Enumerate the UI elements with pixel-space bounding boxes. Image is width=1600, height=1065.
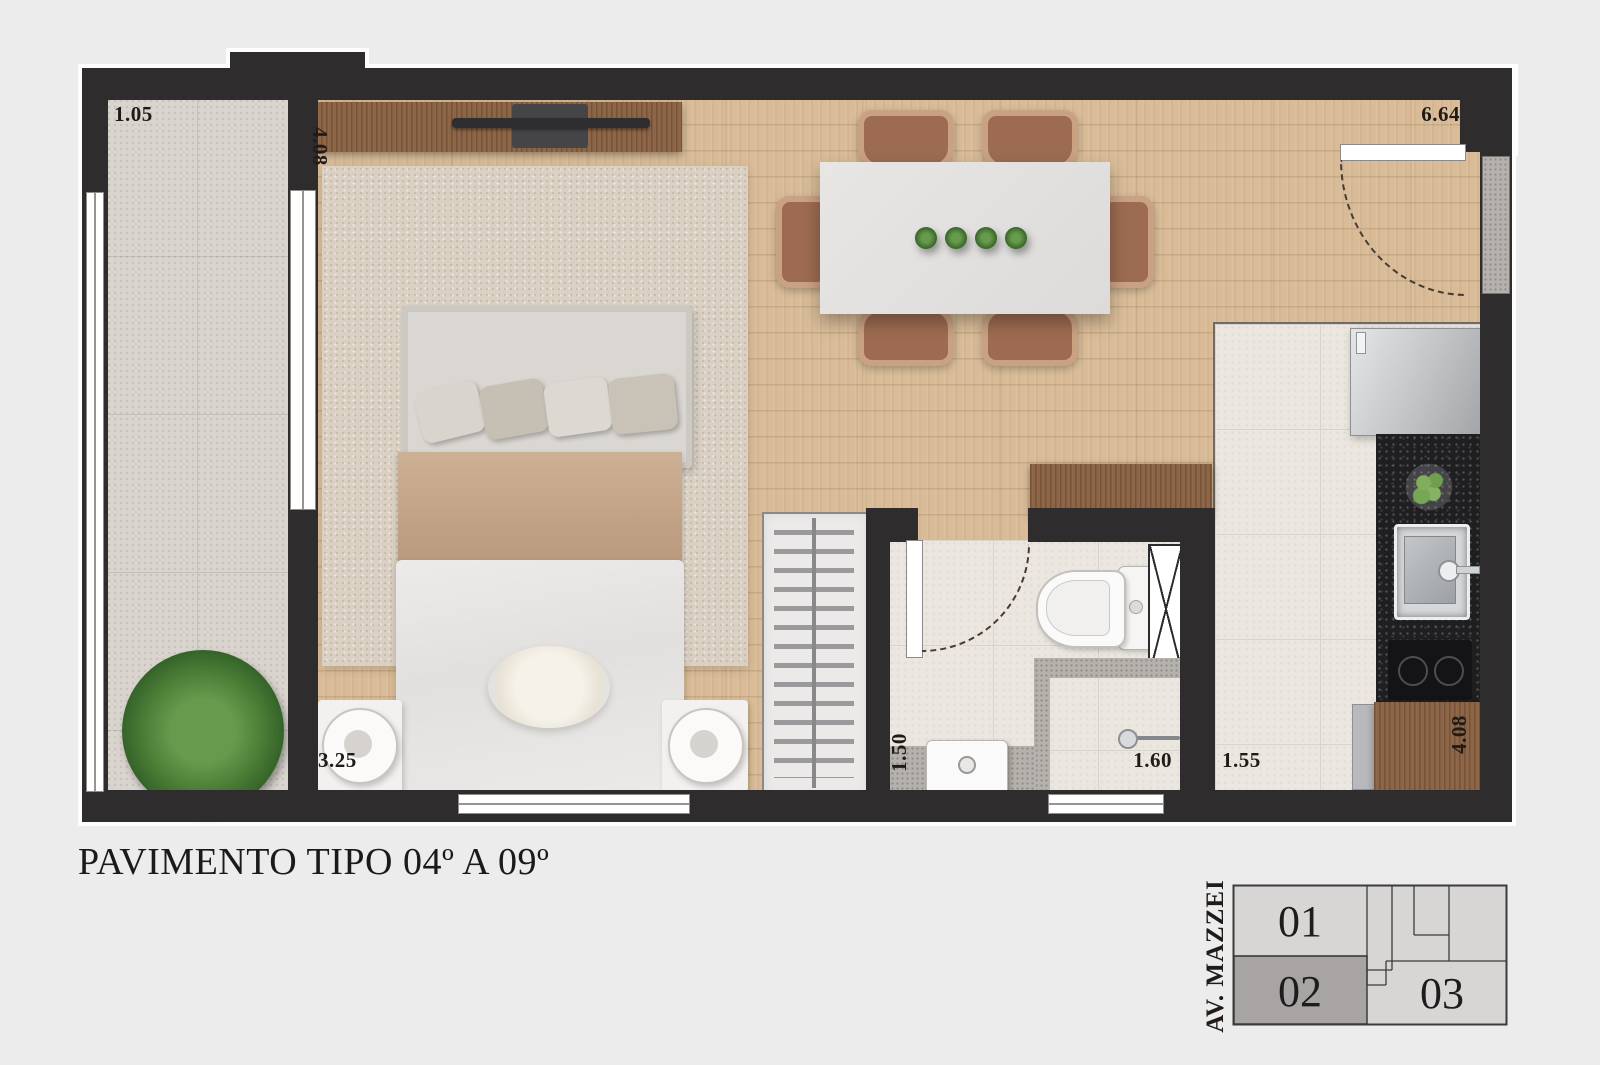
keyplan: 01 02 03 — [1232, 884, 1508, 1026]
fur-pillow — [488, 646, 610, 728]
fridge — [1350, 328, 1484, 436]
bathroom-window — [1048, 794, 1164, 814]
bed-pillow — [543, 376, 614, 438]
keyplan-unit-01-label: 01 — [1278, 897, 1322, 946]
dim-bedroom-width: 3.25 — [318, 748, 357, 773]
dim-kitchen-depth: 4.08 — [1447, 715, 1472, 754]
dim-living: 6.64 — [1402, 102, 1460, 127]
table-plant-icon — [1005, 227, 1027, 249]
dining-chair — [982, 110, 1078, 170]
balcony-window — [290, 190, 316, 510]
tv-screen — [452, 118, 650, 128]
wall-wardrobe-bath — [866, 508, 890, 822]
keyplan-unit-02-label: 02 — [1278, 967, 1322, 1016]
bedroom-window — [458, 794, 690, 814]
dim-bedroom-depth: 4.08 — [307, 127, 332, 166]
dim-balcony: 1.05 — [114, 102, 153, 127]
wall-entry-jamb — [1482, 156, 1510, 294]
entry-door-leaf — [1340, 144, 1466, 161]
bed-blanket — [398, 452, 682, 564]
page-title: PAVIMENTO TIPO 04º A 09º — [78, 840, 549, 884]
balcony-railing — [86, 192, 104, 792]
toilet-flush-icon — [1129, 600, 1143, 614]
shower-halfwall — [1034, 658, 1050, 792]
kitchen-faucet-arm — [1456, 566, 1480, 574]
keyplan-street-label: AV. MAZZEI — [1202, 876, 1230, 1036]
oven — [1352, 704, 1376, 790]
towel-bar-knob — [1118, 729, 1138, 749]
table-plant-icon — [915, 227, 937, 249]
side-table-center — [690, 730, 718, 758]
dim-bathroom-width: 1.50 — [887, 733, 912, 772]
dining-chair — [858, 306, 954, 366]
toilet-seat — [1046, 580, 1110, 636]
wardrobe-rod — [812, 518, 816, 788]
table-plant-icon — [945, 227, 967, 249]
fridge-handle — [1356, 332, 1366, 354]
bed-pillow — [607, 373, 678, 436]
bed-pillow — [478, 377, 550, 441]
wall-bath-kitchen — [1180, 508, 1215, 822]
bathroom-door-leaf — [906, 540, 923, 658]
floorplan-page: 1.05 4.08 6.64 3.25 1.50 1.60 1.55 4.08 … — [0, 0, 1600, 1065]
dim-kitchen-width: 1.55 — [1222, 748, 1261, 773]
bath-faucet-icon — [958, 756, 976, 774]
dining-chair — [982, 306, 1078, 366]
fruit-bowl-icon — [1402, 460, 1456, 514]
keyplan-unit-03-label: 03 — [1420, 969, 1464, 1018]
wall-bath-top-left — [866, 508, 918, 542]
shower-halfwall — [1034, 658, 1182, 678]
dining-chair — [858, 110, 954, 170]
shaft — [1148, 544, 1184, 674]
cooktop-burner-icon — [1398, 656, 1428, 686]
plant-icon — [122, 650, 284, 812]
dim-bathroom-length: 1.60 — [1118, 748, 1172, 773]
table-plant-icon — [975, 227, 997, 249]
cooktop-burner-icon — [1434, 656, 1464, 686]
